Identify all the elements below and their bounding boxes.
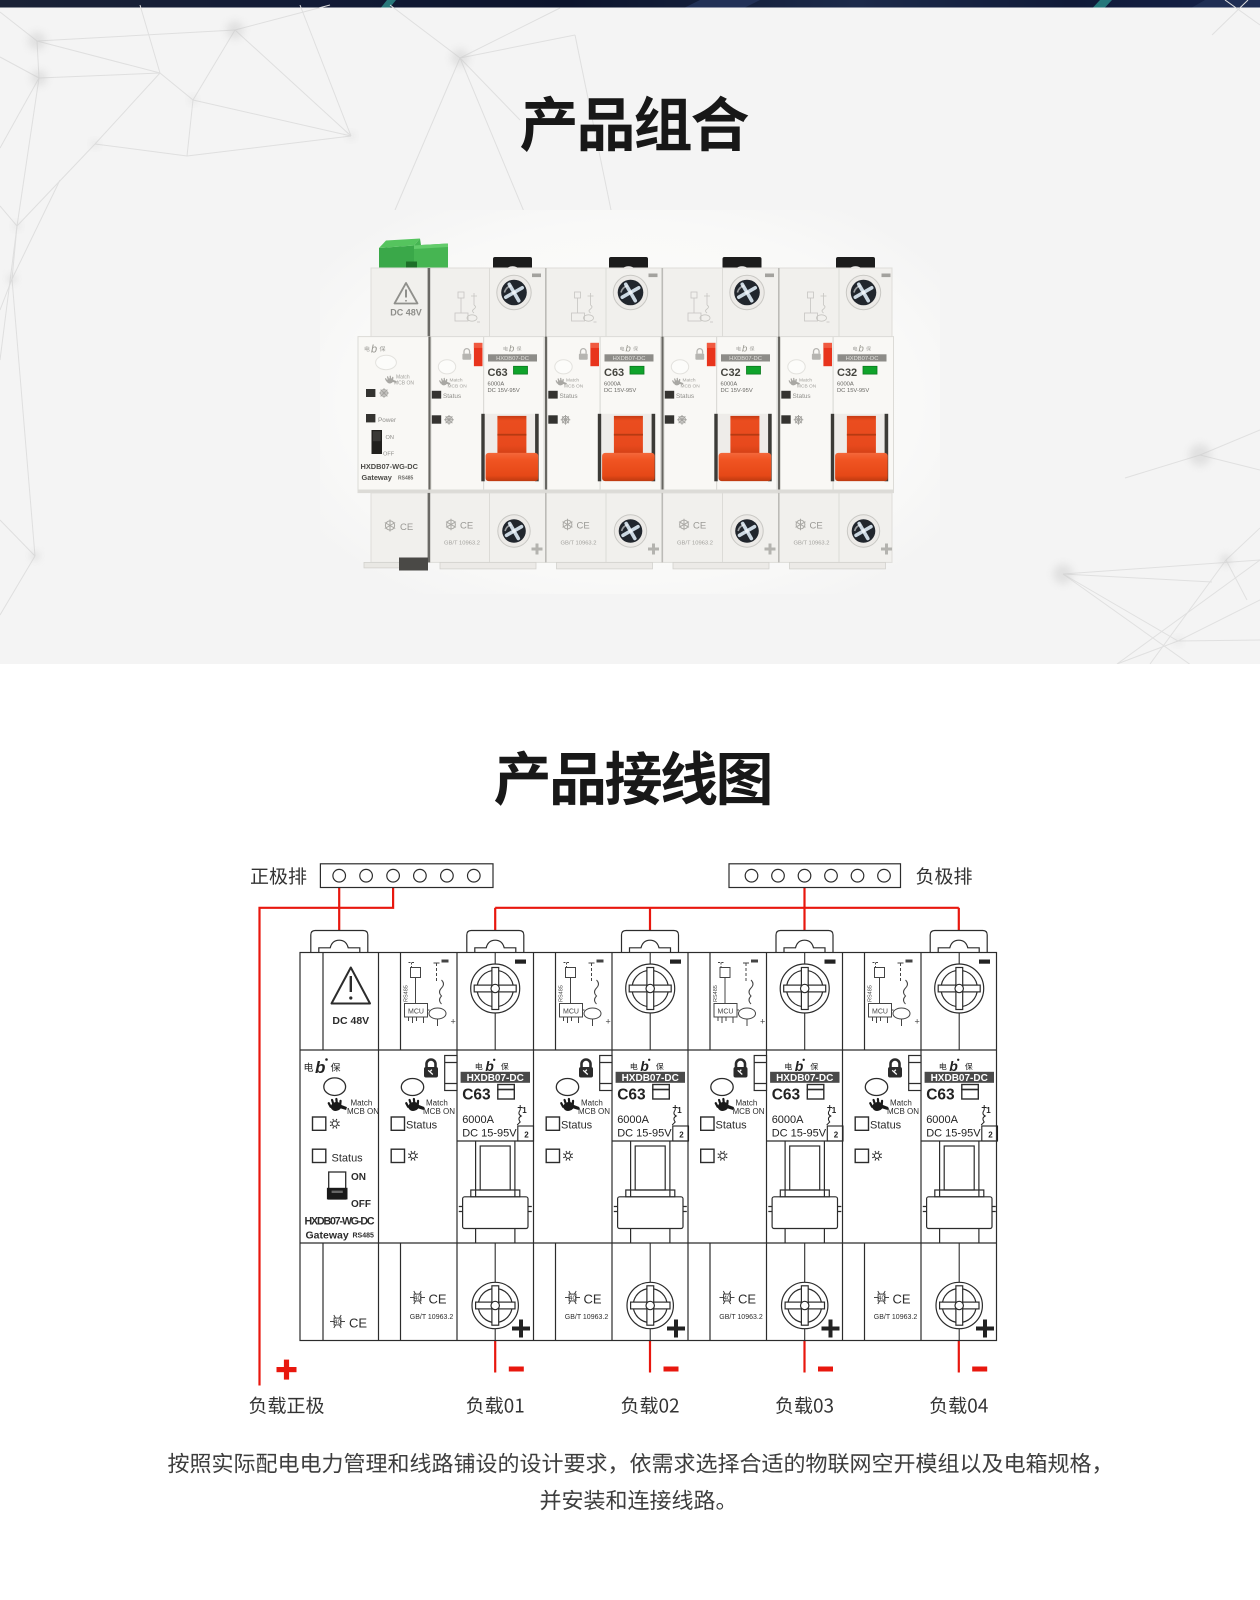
svg-text:Match: Match <box>683 378 696 384</box>
svg-text:MCB ON: MCB ON <box>448 383 468 389</box>
svg-text:Match: Match <box>566 378 579 384</box>
svg-text:Status: Status <box>443 393 461 400</box>
svg-text:b: b <box>859 344 864 355</box>
svg-text:Status: Status <box>560 393 578 400</box>
svg-text:MCB ON: MCB ON <box>797 383 817 389</box>
svg-text:GB/T 10963.2: GB/T 10963.2 <box>677 541 713 547</box>
svg-text:MCB ON: MCB ON <box>564 383 584 389</box>
svg-text:GB/T 10963.2: GB/T 10963.2 <box>794 541 830 547</box>
svg-text:DC 15V-95V: DC 15V-95V <box>604 388 636 394</box>
svg-text:C32: C32 <box>721 367 741 379</box>
svg-text:b: b <box>315 1058 325 1077</box>
svg-text:C32: C32 <box>837 367 857 379</box>
svg-text:Gateway: Gateway <box>362 473 393 482</box>
svg-text:HXDB07-WG-DC: HXDB07-WG-DC <box>305 1216 375 1228</box>
svg-text:HXDB07-WG-DC: HXDB07-WG-DC <box>361 462 419 471</box>
svg-text:CE: CE <box>693 521 706 532</box>
svg-text:ON: ON <box>351 1172 366 1183</box>
svg-text:DC 48V: DC 48V <box>332 1015 369 1027</box>
svg-text:CE: CE <box>400 522 413 533</box>
svg-text:CE: CE <box>577 521 590 532</box>
svg-text:HXDB07-DC: HXDB07-DC <box>729 356 762 362</box>
svg-text:CE: CE <box>460 521 473 532</box>
svg-text:6000A: 6000A <box>488 381 505 387</box>
svg-text:Status: Status <box>332 1153 364 1165</box>
svg-text:CE: CE <box>349 1316 367 1331</box>
svg-text:Gateway: Gateway <box>306 1230 349 1242</box>
svg-text:HXDB07-DC: HXDB07-DC <box>846 356 879 362</box>
svg-text:Status: Status <box>793 393 811 400</box>
svg-text:40: 40 <box>334 1319 342 1326</box>
svg-text:GB/T 10963.2: GB/T 10963.2 <box>444 541 480 547</box>
svg-text:DC 15V-95V: DC 15V-95V <box>488 388 520 394</box>
svg-text:b: b <box>509 344 514 355</box>
svg-text:MCB ON: MCB ON <box>394 381 414 387</box>
svg-text:DC 48V: DC 48V <box>390 308 422 318</box>
svg-text:HXDB07-DC: HXDB07-DC <box>613 356 646 362</box>
svg-text:b: b <box>742 344 747 355</box>
svg-text:MCB ON: MCB ON <box>681 383 701 389</box>
svg-text:DC 15V-95V: DC 15V-95V <box>721 388 753 394</box>
svg-text:OFF: OFF <box>351 1199 371 1210</box>
svg-text:CE: CE <box>810 521 823 532</box>
svg-text:DC 15V-95V: DC 15V-95V <box>837 388 869 394</box>
svg-text:b: b <box>626 344 631 355</box>
svg-text:HXDB07-DC: HXDB07-DC <box>496 356 529 362</box>
svg-text:6000A: 6000A <box>721 381 738 387</box>
svg-text:Match: Match <box>450 378 463 384</box>
svg-text:RS485: RS485 <box>398 476 414 482</box>
svg-text:6000A: 6000A <box>837 381 854 387</box>
svg-text:ON: ON <box>386 435 394 441</box>
svg-text:Power: Power <box>378 417 397 424</box>
svg-text:GB/T 10963.2: GB/T 10963.2 <box>561 541 597 547</box>
svg-text:RS485: RS485 <box>353 1233 375 1240</box>
svg-text:OFF: OFF <box>383 452 395 458</box>
svg-text:MCB ON: MCB ON <box>347 1107 379 1116</box>
svg-text:Match: Match <box>799 378 812 384</box>
svg-text:6000A: 6000A <box>604 381 621 387</box>
svg-text:Status: Status <box>676 393 694 400</box>
svg-text:C63: C63 <box>604 367 624 379</box>
svg-text:C63: C63 <box>488 367 508 379</box>
svg-text:b: b <box>371 344 377 356</box>
